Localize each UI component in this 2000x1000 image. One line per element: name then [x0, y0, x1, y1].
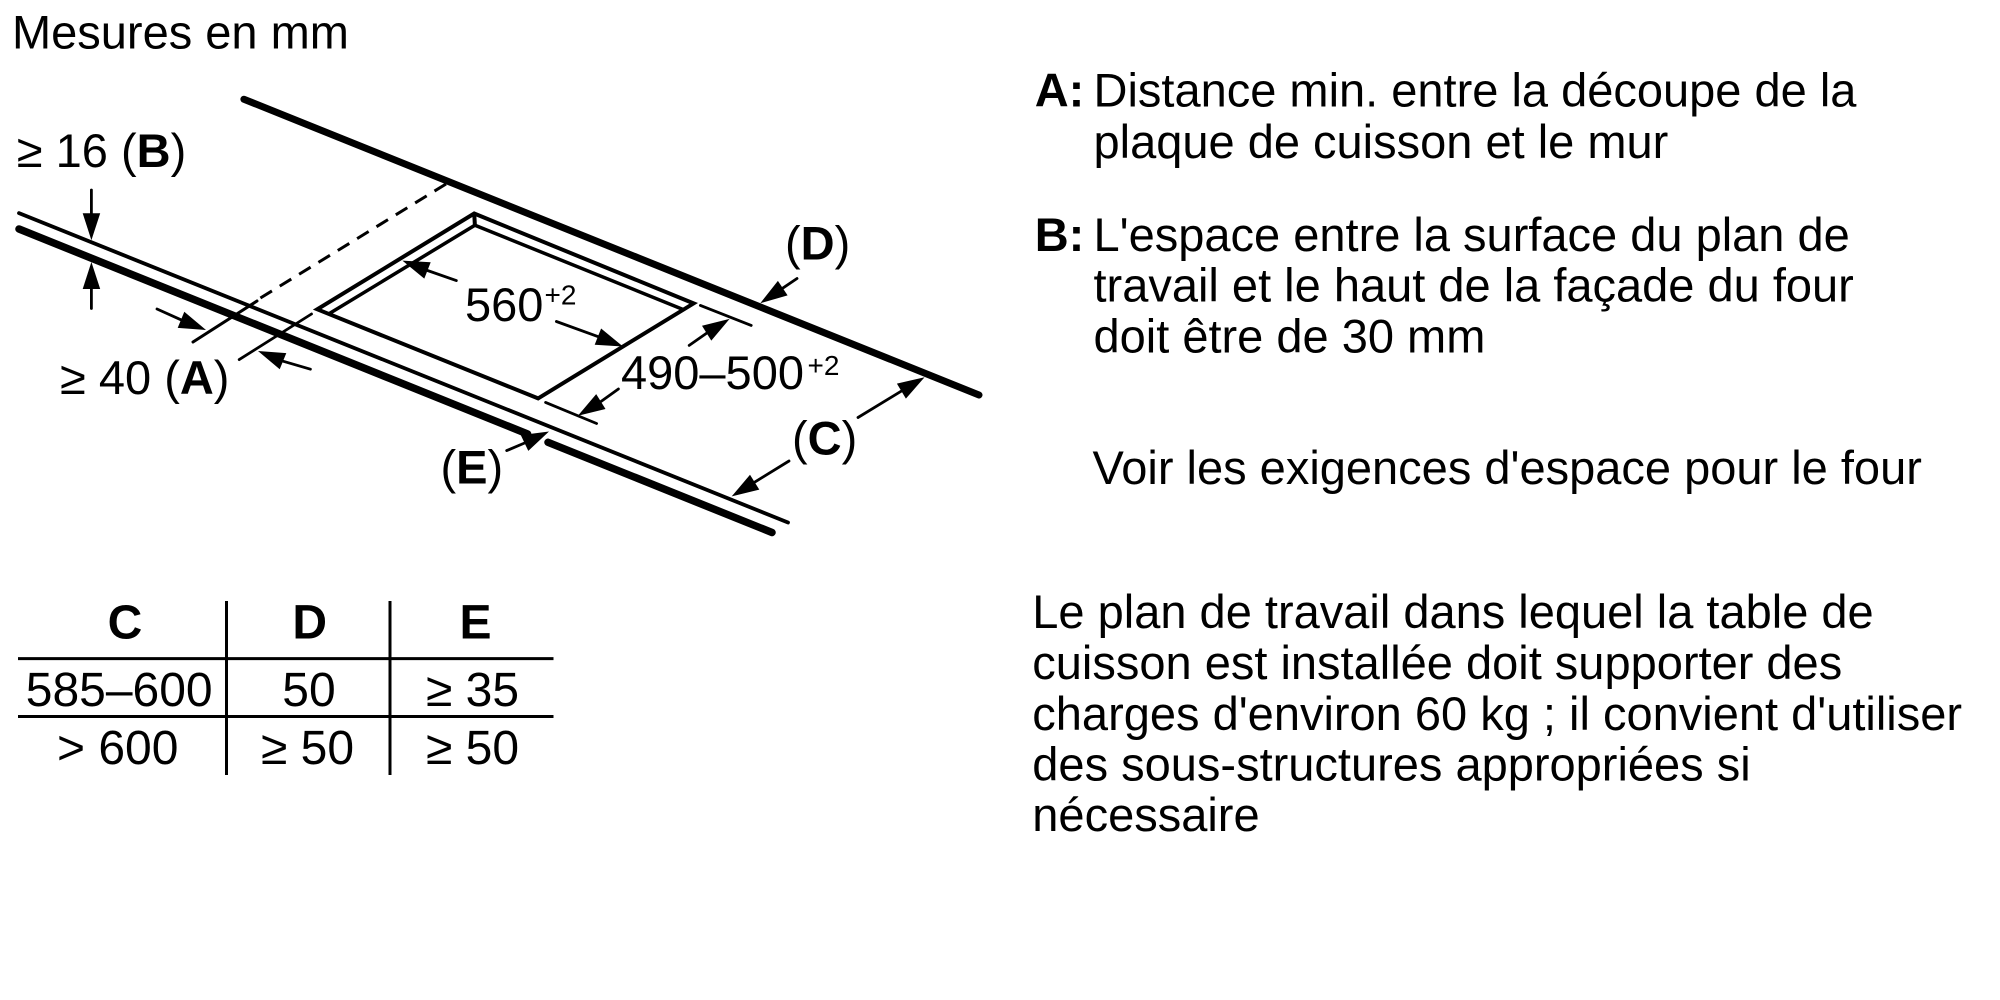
svg-text:travail et le haut de la façad: travail et le haut de la façade du four [1094, 259, 1854, 312]
svg-text:50: 50 [282, 664, 335, 717]
svg-text:≥ 16 (B): ≥ 16 (B) [17, 124, 186, 177]
svg-text:B:: B: [1035, 208, 1085, 261]
svg-text:doit être de 30 mm: doit être de 30 mm [1094, 310, 1486, 363]
svg-text:cuisson est installée doit sup: cuisson est installée doit supporter des [1032, 636, 1842, 689]
svg-text:+2: +2 [808, 350, 840, 381]
svg-text:Mesures en mm: Mesures en mm [12, 6, 349, 59]
svg-text:L'espace entre la surface du p: L'espace entre la surface du plan de [1094, 208, 1850, 261]
svg-text:C: C [108, 597, 143, 650]
svg-text:585–600: 585–600 [26, 664, 213, 717]
svg-text:plaque de cuisson et le mur: plaque de cuisson et le mur [1094, 115, 1669, 168]
svg-text:+2: +2 [545, 280, 577, 311]
svg-text:≥ 40 (A): ≥ 40 (A) [60, 351, 229, 404]
svg-text:Voir les exigences d'espace po: Voir les exigences d'espace pour le four [1093, 441, 1922, 494]
svg-text:(E): (E) [441, 441, 504, 494]
svg-text:charges d'environ 60 kg ; il c: charges d'environ 60 kg ; il convient d'… [1032, 687, 1962, 740]
svg-text:≥ 35: ≥ 35 [426, 664, 519, 717]
svg-text:E: E [459, 597, 491, 650]
svg-text:D: D [292, 597, 327, 650]
svg-text:≥ 50: ≥ 50 [426, 722, 519, 775]
svg-text:A:: A: [1035, 64, 1085, 117]
svg-text:560: 560 [465, 278, 543, 331]
svg-text:Le plan de travail dans lequel: Le plan de travail dans lequel la table … [1032, 585, 1873, 638]
svg-text:(C): (C) [792, 412, 857, 465]
svg-text:Distance min. entre la découpe: Distance min. entre la découpe de la [1094, 64, 1858, 117]
svg-text:des sous-structures appropriée: des sous-structures appropriées si [1032, 737, 1750, 790]
svg-text:> 600: > 600 [57, 722, 178, 775]
svg-text:490–500: 490–500 [621, 346, 804, 399]
svg-text:nécessaire: nécessaire [1032, 788, 1259, 841]
svg-text:(D): (D) [785, 217, 850, 270]
svg-text:≥ 50: ≥ 50 [261, 722, 354, 775]
